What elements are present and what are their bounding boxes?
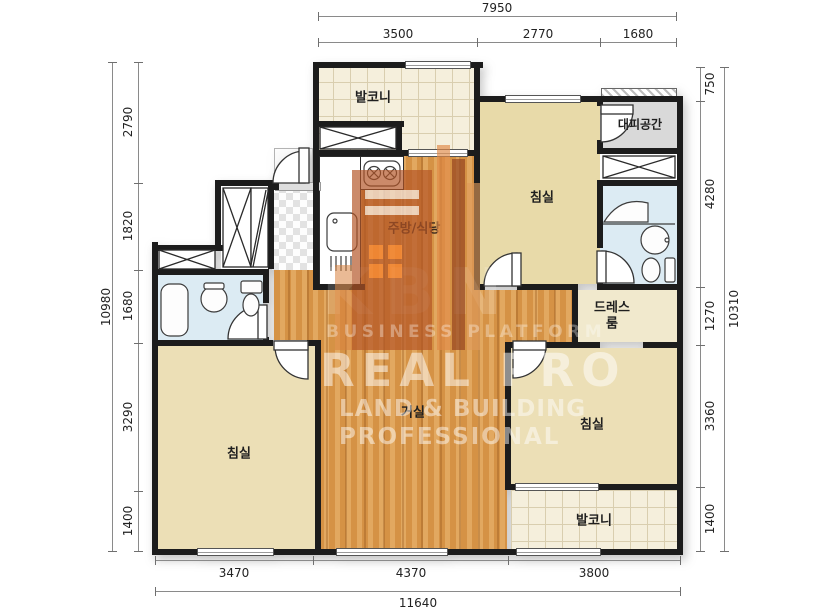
label-balcony-top: 발코니 — [355, 87, 391, 106]
kitchen-sink-icon — [327, 213, 357, 251]
dim-right-seg-4: 3360 — [703, 386, 717, 446]
toilet-right-tank-icon — [665, 258, 675, 282]
toilet-left-bowl-icon — [243, 294, 259, 316]
bath-left-door-leaf — [258, 305, 267, 339]
dim-bottom-seg-2: 4370 — [381, 566, 441, 580]
label-dressroom: 드레스룸 — [594, 300, 630, 331]
label-balcony-bottom: 발코니 — [576, 510, 612, 529]
dim-left-seg-1: 2790 — [121, 92, 135, 152]
label-bedroom-right: 침실 — [580, 414, 604, 433]
label-living: 거실 — [401, 402, 425, 421]
kitchen-fixtures — [327, 161, 400, 271]
bedroom-tr-door-leaf — [512, 253, 521, 286]
dim-line-right-total — [724, 67, 725, 552]
sink-left-icon — [201, 286, 227, 312]
bedroom-right-door-leaf — [513, 341, 546, 350]
dim-top-seg-3: 1680 — [608, 27, 668, 41]
bath-right-door-arc — [602, 251, 634, 283]
dim-left-seg-2: 1820 — [121, 196, 135, 256]
dim-bottom-seg-3: 3800 — [564, 566, 624, 580]
dim-right-seg-1: 750 — [703, 54, 717, 114]
door-arcs — [228, 105, 634, 379]
dim-top-total: 7950 — [467, 1, 527, 15]
dim-left-seg-4: 3290 — [121, 387, 135, 447]
bedroom-left-door-arc — [275, 346, 308, 379]
dim-right-seg-2: 4280 — [703, 164, 717, 224]
bathtub-icon — [161, 284, 188, 336]
dim-line-top-segments — [318, 42, 677, 43]
dim-left-seg-5: 1400 — [121, 491, 135, 551]
dim-line-top-total — [318, 16, 677, 17]
dim-left-seg-3: 1680 — [121, 276, 135, 336]
evacuation-door-leaf — [601, 105, 633, 114]
floor-plan-page: { "meta": { "type": "apartment-floor-pla… — [0, 0, 840, 615]
closet-boxes — [159, 127, 675, 269]
bedroom-left-door-leaf — [274, 341, 308, 350]
entry-door-leaf — [299, 148, 309, 183]
dim-right-seg-3: 1270 — [703, 286, 717, 346]
dim-bottom-total: 11640 — [388, 596, 448, 610]
dim-left-total: 10980 — [99, 277, 113, 337]
dim-top-seg-2: 2770 — [508, 27, 568, 41]
dim-line-bottom-total — [155, 591, 681, 592]
label-evacuation: 대피공간 — [618, 116, 662, 133]
toilet-left-tank-icon — [241, 281, 262, 293]
dim-bottom-seg-1: 3470 — [204, 566, 264, 580]
label-kitchen: 주방/식당 — [388, 218, 441, 237]
dim-line-bottom-segments — [155, 560, 681, 561]
dim-right-seg-5: 1400 — [703, 489, 717, 549]
label-bedroom-top-right: 침실 — [530, 187, 554, 206]
bath-right-door-leaf — [597, 251, 606, 283]
dim-line-right-segments — [700, 67, 701, 552]
label-bedroom-left: 침실 — [227, 443, 251, 462]
dim-line-left-segments — [138, 62, 139, 552]
toilet-right-bowl-icon — [642, 258, 660, 282]
dim-right-total: 10310 — [727, 279, 741, 339]
dim-top-seg-1: 3500 — [368, 27, 428, 41]
shower-icon — [604, 202, 648, 222]
